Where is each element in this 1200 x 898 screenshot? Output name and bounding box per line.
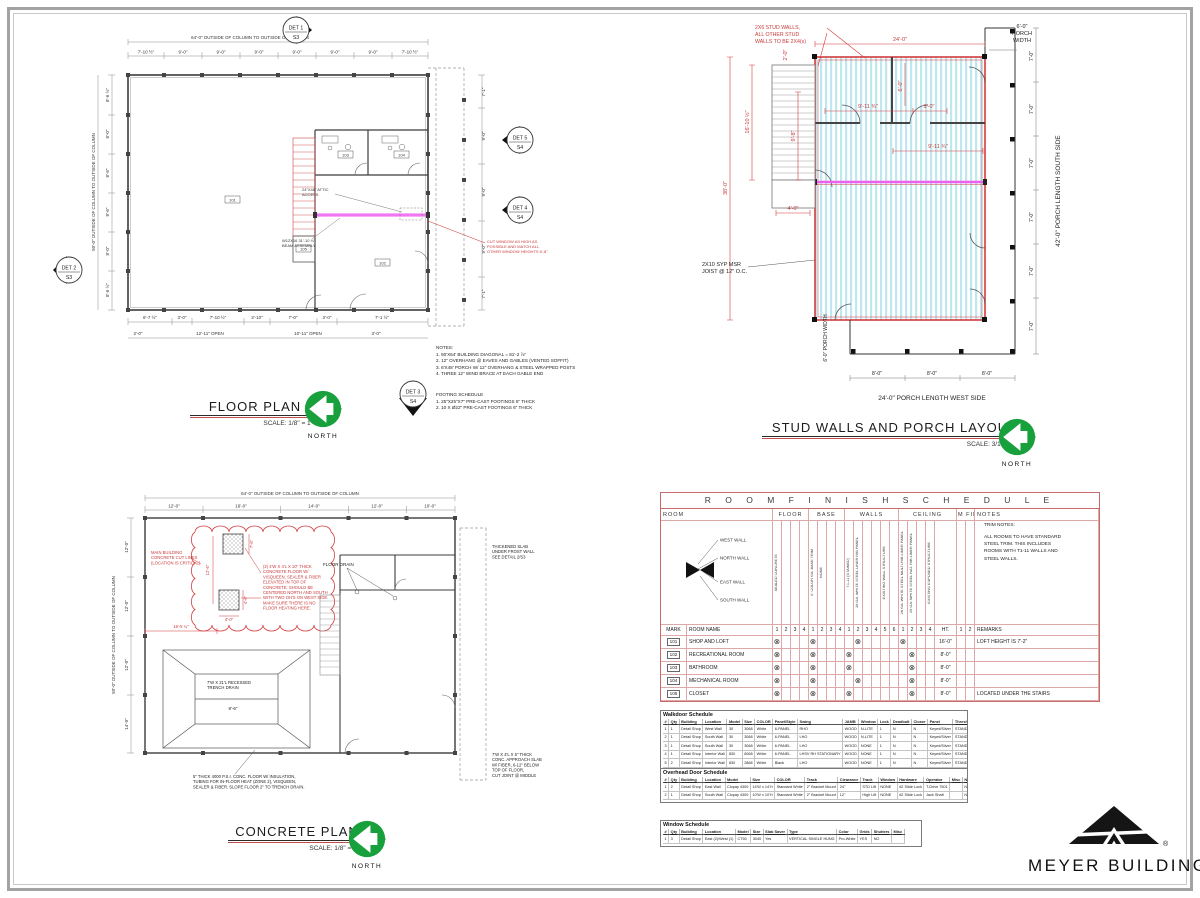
dim-label: 24'-0" — [893, 37, 907, 43]
room-schedule-cell — [966, 521, 975, 624]
room-schedule-cell — [854, 688, 863, 700]
room-schedule-cell — [975, 649, 1099, 661]
det-marker-2: DET 2 S3 — [53, 256, 82, 284]
schedule-header-cell: Window — [859, 719, 878, 725]
schedule-cell: NONE — [859, 742, 878, 751]
room-schedule-row: 102RECREATIONAL ROOM⊗⊗⊗⊗8'-0" — [661, 649, 1099, 662]
room-schedule-cell: 1 — [845, 625, 854, 635]
dim-label: 6'-7 ½" — [143, 314, 157, 320]
north-arrow-icon — [348, 820, 386, 858]
schedule-cell: West Wall — [703, 725, 727, 734]
north-label: NORTH — [345, 863, 389, 870]
room-schedule-row: 101SHOP AND LOFT⊗⊗⊗⊗16'-0"LOFT HEIGHT IS… — [661, 636, 1099, 649]
floor-plan-notes: NOTES: 1. 50'X64' BUILDING DIAGONAL = 81… — [436, 345, 596, 377]
room-schedule-cell — [881, 675, 890, 687]
room-schedule-cell: EXISTING EXPOSED STRUCTURE — [926, 521, 935, 624]
finish-check: ⊗ — [909, 664, 915, 672]
room-schedule-cell: ⊗ — [908, 649, 917, 661]
schedule-header-cell: Deadbolt — [891, 719, 912, 725]
room-schedule-cell — [782, 649, 791, 661]
dim-label: 7'-1" — [481, 289, 486, 298]
finish-check: ⊗ — [855, 677, 861, 685]
room-schedule-cell: 6 — [890, 625, 899, 635]
room-schedule-cell: ⊗ — [773, 675, 782, 687]
concrete-pad-2 — [219, 590, 239, 610]
finish-label: SEALED CONCRETE — [775, 554, 779, 591]
dim-label: 9'-0" — [481, 187, 486, 196]
room-schedule-cell — [836, 636, 845, 648]
room-schedule-cell: NOTES — [975, 509, 1099, 520]
schedule-cell: 3 — [669, 835, 680, 844]
room-schedule-cell — [872, 649, 881, 661]
schedule-cell: Detail Shop — [679, 783, 703, 792]
dim-label: 16'-0" — [235, 504, 247, 509]
finish-check: ⊗ — [774, 677, 780, 685]
room-schedule-cell: 1 — [957, 625, 966, 635]
dim-label: 2'-0" — [783, 49, 789, 60]
room-schedule-cell: 4" COLOR GA. BASE TRIM — [809, 521, 818, 624]
room-schedule-cell: ROOM — [661, 509, 773, 520]
floor-plan-dimensions — [98, 39, 485, 338]
schedule-cell: 6-PANEL — [773, 725, 798, 734]
dim-label: 12'-0" — [124, 659, 129, 671]
schedule-cell: STANDARD — [953, 759, 968, 768]
room-schedule-cell — [827, 649, 836, 661]
concrete-interior-walls — [340, 555, 455, 753]
det-label: DET 3 — [406, 390, 421, 396]
finish-check: ⊗ — [810, 664, 816, 672]
finish-check: ⊗ — [774, 690, 780, 698]
schedule-cell: White — [755, 759, 773, 768]
schedule-cell: N-LITE — [859, 733, 878, 742]
room-schedule-cell — [836, 662, 845, 674]
beam-leader — [312, 218, 340, 239]
schedule-cell: N — [911, 733, 927, 742]
finish-check: ⊗ — [810, 690, 816, 698]
schedule-cell: 1 — [878, 750, 891, 759]
schedule-cell: 14'W x 14'H — [750, 783, 774, 792]
room-schedule-cell — [800, 688, 809, 700]
finish-label: 29 GA. WHITE STEEL NAT. RIB LINER PANEL — [910, 533, 914, 613]
room-schedule-cell — [818, 636, 827, 648]
meyer-building-logo: ® MEYER BUILDING — [1028, 804, 1200, 876]
dim-label: 8'-6" — [105, 168, 110, 177]
table-row: 41Detail ShopInterior Wall8306068White6-… — [663, 750, 968, 759]
dim-label: 50'-0" OUTSIDE OF COLUMN TO OUTSIDE OF C… — [111, 576, 116, 694]
table-row: 21Detail ShopSouth Wall303068White6-PANE… — [663, 733, 968, 742]
det-label: DET 2 — [62, 266, 77, 272]
schedule-title: Window Schedule — [663, 822, 919, 828]
room-schedule-cell: 3 — [791, 625, 800, 635]
room-schedule-cell: 4 — [836, 625, 845, 635]
room-schedule-cell: 29 GA. WHITE STEEL NAT. RIB LINER PANEL — [908, 521, 917, 624]
room-schedule-cell — [957, 688, 966, 700]
schedule-cell: 30 — [727, 733, 742, 742]
schedule-cell: LHO — [797, 742, 842, 751]
room-schedule-cell — [881, 649, 890, 661]
room-schedule-cell — [881, 636, 890, 648]
finish-check: ⊗ — [909, 677, 915, 685]
schedule-cell: Detail Shop — [679, 750, 703, 759]
room-mark: 105 — [667, 690, 681, 699]
joist-note-leader — [748, 260, 815, 267]
dim-label: 7'-10 ½" — [138, 49, 155, 55]
room-schedule-cell — [836, 688, 845, 700]
finish-check: ⊗ — [855, 638, 861, 646]
schedule-header-cell: Shutters — [872, 829, 892, 835]
schedule-cell: N — [891, 733, 912, 742]
schedule-cell: 6-PANEL — [773, 742, 798, 751]
room-schedule-cell: T1-11 (STAINED) — [845, 521, 854, 624]
schedule-cell: 1 — [669, 725, 680, 734]
room-schedule-cell: 1 — [899, 625, 908, 635]
schedule-header-cell: Model — [735, 829, 750, 835]
concrete-stairs — [320, 595, 340, 675]
dim-label: 7'-0" — [1029, 104, 1035, 114]
schedule-cell: 6-PANEL — [773, 750, 798, 759]
concrete-columns — [143, 516, 457, 755]
dim-label: 7'-0" — [1029, 321, 1035, 331]
dim-label: 8'-0" — [105, 246, 110, 255]
room-schedule-cell: 8'-0" — [935, 649, 957, 661]
dim-label: 7'-10 ½" — [402, 49, 419, 55]
det-label: DET 4 — [513, 206, 528, 212]
room-mark: 103 — [342, 152, 349, 157]
schedule-cell: 830 — [727, 759, 742, 768]
concrete-floor-note: 5" THICK 4000 P.S.I. CONC. FLOOR W/ INSU… — [193, 774, 305, 789]
room-schedule-cell: ⊗ — [809, 688, 818, 700]
schedule-cell: 30 — [727, 725, 742, 734]
schedule-cell: NONE — [859, 759, 878, 768]
dim-label: 9'-11 ¾" — [858, 104, 878, 110]
schedule-cell: Yes — [763, 835, 787, 844]
schedule-cell: White — [755, 750, 773, 759]
room-schedule-cell: 26 GA. WHITE STEEL MULTI-RIB LINER PANEL — [899, 521, 908, 624]
schedule-cell: 3068 — [742, 742, 754, 751]
room-schedule-cell: ⊗ — [809, 636, 818, 648]
room-schedule-cell: SHOP AND LOFT — [687, 636, 773, 648]
footing-schedule: FOOTING SCHEDULE 1. 25"X25"X7" PRE-CAST … — [436, 392, 596, 412]
schedule-cell: Clopay 4300 — [725, 783, 750, 792]
room-schedule-cell: BASE — [809, 509, 845, 520]
room-schedule-cell: 101 — [661, 636, 687, 648]
stud-porch-posts-west — [851, 349, 964, 354]
room-mark: 102 — [667, 651, 681, 660]
room-schedule-cell — [966, 688, 975, 700]
room-schedule-cell — [863, 662, 872, 674]
dim-label: 9'-0" — [217, 50, 226, 55]
room-schedule-cell — [818, 662, 827, 674]
schedule-cell: 1 — [878, 725, 891, 734]
schedule-cell: 1 — [878, 759, 891, 768]
room-mark: 103 — [667, 664, 681, 673]
dim-label: 3'-10" — [251, 315, 263, 320]
room-schedule-cell — [836, 521, 845, 624]
finish-check: ⊗ — [810, 677, 816, 685]
room-schedule-cell — [908, 636, 917, 648]
room-schedule-cell — [791, 649, 800, 661]
det-marker-4: DET 4 S4 — [502, 196, 533, 224]
finish-label: 4" COLOR GA. BASE TRIM — [811, 549, 815, 596]
room-schedule-cell — [800, 636, 809, 648]
dim-label: 14'-0" — [124, 718, 129, 730]
stud-building-floor — [815, 57, 985, 320]
schedule-cell: No — [962, 791, 968, 800]
north-arrow-icon — [998, 418, 1036, 456]
room-schedule-cell: MARK — [661, 625, 687, 635]
bathroom-fixtures — [322, 136, 405, 150]
room-schedule-cell — [957, 675, 966, 687]
room-schedule-cell: WALLS — [845, 509, 899, 520]
stud-porch-posts-south — [1010, 29, 1015, 354]
schedule-title: Walkdoor Schedule — [663, 712, 965, 718]
dim-label: 10'-11" OPEN — [294, 331, 322, 336]
room-schedule-cell: 8'-0" — [935, 688, 957, 700]
dim-label: 9'-0" — [331, 50, 340, 55]
schedule-cell: East Wall — [703, 783, 725, 792]
room-schedule-cell: 1 — [773, 625, 782, 635]
dim-label: 8'-0" — [872, 371, 882, 377]
stud-red-note: 2X6 STUD WALLS,ALL OTHER STUDWALLS TO BE… — [755, 25, 806, 45]
finish-check: ⊗ — [909, 690, 915, 698]
schedule-cell: Keyed/Silver — [928, 759, 953, 768]
schedule-cell: 3068 — [742, 725, 754, 734]
schedule-cell: 6-PANEL — [773, 733, 798, 742]
table-row: 12Detail ShopEast WallClopay 430014'W x … — [663, 783, 968, 792]
meyer-logo-text: MEYER BUILDING — [1028, 856, 1200, 876]
room-schedule-cell: RECREATIONAL ROOM — [687, 649, 773, 661]
room-schedule-cell — [791, 675, 800, 687]
schedule-cell: South Wall — [703, 742, 727, 751]
floor-drain-label: FLOOR DRAIN — [323, 562, 354, 567]
room-schedule-cell — [845, 675, 854, 687]
schedule-header-cell: Slab Saver — [763, 829, 787, 835]
schedule-cell: Blank — [773, 759, 798, 768]
table-row: 21Detail ShopSouth WallClopay 430010'W x… — [663, 791, 968, 800]
stud-plan-scale: SCALE: 3/16" = 1'-0" — [762, 441, 1027, 448]
room-schedule-cell — [957, 662, 966, 674]
schedule-cell: N-LITE — [859, 725, 878, 734]
room-schedule-cell: ⊗ — [773, 662, 782, 674]
wall-label: EAST WALL — [720, 580, 746, 585]
schedule-cell: STD Lift — [860, 783, 878, 792]
schedule-cell: 30 — [727, 742, 742, 751]
room-schedule-cell: CLOSET — [687, 688, 773, 700]
dim-label: 8'-0" — [982, 371, 992, 377]
pads-note-leaders — [241, 548, 261, 598]
room-schedule-cell — [863, 675, 872, 687]
wall-label: SOUTH WALL — [720, 598, 750, 603]
room-schedule-cell — [926, 675, 935, 687]
room-schedule-cell — [890, 688, 899, 700]
dim-label: 9'-0" — [179, 50, 188, 55]
room-schedule-cell: FLOOR — [773, 509, 809, 520]
room-schedule-cell — [854, 649, 863, 661]
room-schedule-cell — [863, 688, 872, 700]
dim-label: 12'-0" — [371, 504, 383, 509]
room-mark: 101 — [667, 638, 681, 647]
dim-label: 64'-0" OUTSIDE OF COLUMN TO OUTSIDE OF C… — [241, 491, 359, 496]
room-schedule-cell: SEALED CONCRETE — [773, 521, 782, 624]
room-schedule-cell — [791, 662, 800, 674]
dim-label: 12'-0" — [124, 541, 129, 553]
schedule-cell: Pro-White — [837, 835, 858, 844]
room-mark-boxes: 101 102 103 104 105 — [225, 151, 409, 266]
beam-line — [313, 212, 430, 218]
schedule-cell: No — [962, 783, 968, 792]
table-row: 52Detail ShopInterior Wall8302868WhiteBl… — [663, 759, 968, 768]
room-schedule-cell: ⊗ — [908, 688, 917, 700]
table-row: 11Detail ShopWest Wall303068White6-PANEL… — [663, 725, 968, 734]
dim-label: 7'-0" — [1029, 266, 1035, 276]
stud-plan-drawing: 24'-0" 38'-0" 16'-10 ½" 9'-8" 2'-0" 6'-0… — [700, 8, 1185, 463]
room-schedule-cell — [782, 675, 791, 687]
room-schedule-cell: 3 — [863, 625, 872, 635]
dim-label: 14'-0" — [308, 504, 320, 509]
finish-check: ⊗ — [846, 664, 852, 672]
porch-length-label: 24'-0" PORCH LENGTH WEST SIDE — [878, 395, 986, 402]
schedule-header-cell: Panel/Style — [773, 719, 798, 725]
schedule-cell: 2 — [669, 759, 680, 768]
det-marker-5: DET 5 S4 — [502, 126, 533, 154]
schedule-cell: STANDARD — [953, 725, 968, 734]
dim-label: 4'-0" — [788, 206, 799, 212]
schedule-cell: Detail Shop — [679, 791, 703, 800]
note-line: 3. 6'X48' PORCH W/ 12" OVERHANG & STEEL … — [436, 365, 596, 371]
room-schedule-cell: ⊗ — [854, 636, 863, 648]
schedule-cell: Interior Wall — [703, 750, 727, 759]
det-sheet: S4 — [517, 145, 523, 151]
room-schedule-cell — [881, 662, 890, 674]
schedule-cell: 6068 — [742, 750, 754, 759]
schedule-cell: 1 — [878, 742, 891, 751]
room-schedule-cell — [917, 636, 926, 648]
dim-label: 7'-6" — [249, 539, 254, 548]
room-schedule-cell — [800, 662, 809, 674]
floor-plan-drawing: 64'-0" OUTSIDE OF COLUMN TO OUTSIDE OF C… — [50, 8, 650, 448]
room-schedule-cell: 2 — [966, 625, 975, 635]
wall-direction-diagram: WEST WALL NORTH WALL EAST WALL SOUTH WAL… — [668, 522, 772, 618]
room-schedule-cell: ⊗ — [773, 688, 782, 700]
window-note: CUT WINDOW AS HIGH ASPOSSIBLE AND MATCH … — [487, 239, 548, 254]
room-schedule-cell — [890, 649, 899, 661]
room-mark: 102 — [379, 260, 386, 265]
room-schedule-cell: 4 — [926, 625, 935, 635]
room-schedule-cell — [863, 521, 872, 624]
dim-label: 7'-1 ½" — [375, 314, 389, 320]
room-schedule-cell — [966, 675, 975, 687]
schedule-cell: 1 — [878, 733, 891, 742]
schedule-cell: N — [891, 742, 912, 751]
dim-label: 7'-0" — [289, 315, 298, 320]
room-schedule-cell — [791, 688, 800, 700]
room-schedule-cell — [872, 521, 881, 624]
finish-check: ⊗ — [900, 638, 906, 646]
dim-label: 8'-6 ½" — [104, 283, 110, 297]
det-sheet: S4 — [410, 399, 416, 405]
room-schedule-cell — [827, 688, 836, 700]
finish-check: ⊗ — [810, 638, 816, 646]
room-schedule-cell — [863, 636, 872, 648]
finish-check: ⊗ — [774, 664, 780, 672]
schedule-cell: LHO — [797, 733, 842, 742]
table-row: 31Detail ShopSouth Wall303068White6-PANE… — [663, 742, 968, 751]
det-sheet: S3 — [66, 275, 72, 281]
room-schedule-cell: ROOM NAME — [687, 625, 773, 635]
schedule-table: #QtyBuildingLocationModelSizeCOLORTrackC… — [663, 777, 968, 800]
floor-plan-interior-walls — [315, 130, 428, 310]
dim-label: 12'-0" — [168, 504, 180, 509]
finish-check: ⊗ — [846, 690, 852, 698]
dim-label: 3'-0" — [924, 104, 935, 110]
room-schedule-cell — [966, 662, 975, 674]
dim-label: 12'-0" — [124, 600, 129, 612]
table-row: 13Detail ShopEast (2)/West (1)CT503040Ye… — [663, 835, 904, 844]
schedule-cell: 10'W x 10'H — [750, 791, 774, 800]
room-schedule-cell: ⊗ — [854, 675, 863, 687]
room-schedule-cell — [827, 521, 836, 624]
dim-label: 9'-11 ¾" — [928, 144, 948, 150]
finish-label: 26 GA. WHITE STEEL MULTI-RIB LINER PANEL — [901, 531, 905, 614]
schedule-header-cell: Lock — [878, 719, 891, 725]
trench-dim: 8'-6" — [229, 706, 238, 711]
thicken-slab-note: THICKENED SLABUNDER FROST WALLSEE DETAIL… — [492, 544, 535, 559]
room-schedule-cell — [827, 636, 836, 648]
schedule-cell: South Wall — [703, 791, 725, 800]
stud-plan-north: NORTH — [995, 418, 1039, 468]
schedule-cell: WOOD — [843, 750, 859, 759]
room-schedule-cell — [881, 688, 890, 700]
dim-label: 9'-0" — [481, 131, 486, 140]
porch-width-label: 6'-0"PORCHWIDTH — [1012, 24, 1032, 44]
schedule-cell: 2" Bracket Mount — [805, 783, 838, 792]
room-schedule-cell — [818, 649, 827, 661]
schedule-cell: LHO — [797, 759, 842, 768]
room-schedule-cell — [890, 662, 899, 674]
room-schedule-cell: 105 — [661, 688, 687, 700]
schedule-cell: Clopay 4300 — [725, 791, 750, 800]
schedule-cell: WOOD — [843, 742, 859, 751]
room-schedule-cell — [800, 521, 809, 624]
room-schedule-row: 103BATHROOM⊗⊗⊗⊗8'-0" — [661, 662, 1099, 675]
trench-label: 7'W X 21'L RECESSEDTRENCH DRAIN — [207, 680, 251, 690]
room-schedule-cell — [966, 649, 975, 661]
schedule-cell: 2 — [669, 783, 680, 792]
schedule-cell: WOOD — [843, 733, 859, 742]
room-schedule-cell — [917, 521, 926, 624]
room-schedule-cell: 2 — [782, 625, 791, 635]
notes-title: NOTES: — [436, 345, 596, 351]
trench-drain — [163, 650, 310, 748]
room-schedule-cell — [917, 649, 926, 661]
attic-note: 24"X48" ATTICACCESS — [302, 187, 329, 197]
schedule-cell: 12" — [838, 791, 861, 800]
room-schedule-cell — [899, 662, 908, 674]
schedule-cell: White — [755, 725, 773, 734]
room-schedule-cell: 3 — [827, 625, 836, 635]
finish-check: ⊗ — [909, 651, 915, 659]
schedule-cell: NO — [872, 835, 892, 844]
schedule-cell: 2" Bracket Mount — [805, 791, 838, 800]
room-schedule-cell: 104 — [661, 675, 687, 687]
room-schedule-cell: LOCATED UNDER THE STAIRS — [975, 688, 1099, 700]
schedule-cell: Detail Shop — [679, 759, 703, 768]
dim-label: 7'-10 ½" — [210, 314, 227, 320]
room-schedule-cell — [917, 675, 926, 687]
dim-label: 6'-0" — [898, 80, 904, 91]
room-schedule-cell — [957, 649, 966, 661]
dim-label: 3'-0" — [178, 315, 187, 320]
